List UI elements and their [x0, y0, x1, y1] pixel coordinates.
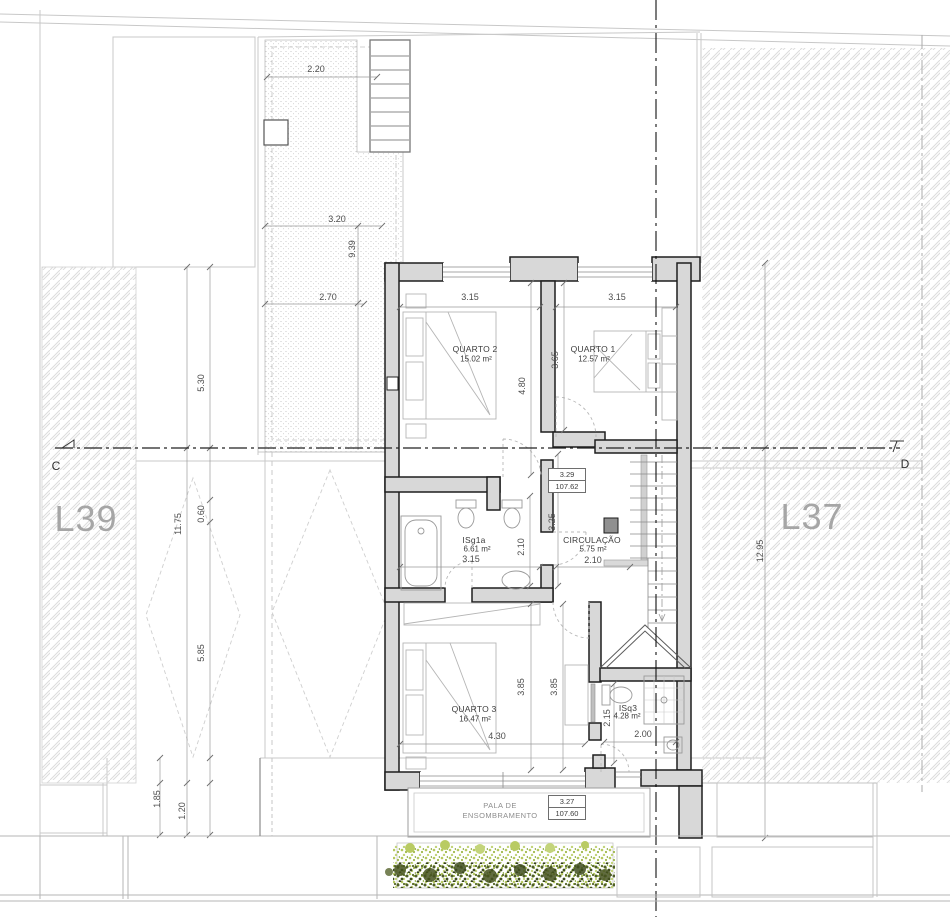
lot-hatch-right — [702, 48, 950, 783]
room-label-circulacao: CIRCULAÇÃO — [563, 535, 621, 545]
floor-plan-sheet: L39 L37 C D QUARTO 2 15.02 m² QUARTO 1 1… — [0, 0, 950, 917]
dim-left-185: 1.85 — [152, 790, 162, 808]
room-label-quarto3: QUARTO 3 — [452, 704, 497, 714]
toilet-2 — [602, 685, 610, 705]
section-marker-d: D — [901, 457, 910, 471]
canopy-label-line2: ENSOMBRAMENTO — [462, 811, 537, 821]
dim-left-1175: 11.75 — [173, 513, 183, 535]
room-area-quarto1: 12.57 m² — [578, 355, 610, 364]
dim-patio-top: 2.20 — [307, 64, 325, 74]
dim-isg1a-width: 3.15 — [462, 554, 480, 564]
house-walls — [385, 257, 702, 838]
level-marker-lower: 3.27 107.60 — [548, 795, 586, 820]
lot-label-l39: L39 — [54, 498, 117, 540]
dim-quarto1-depth: 3.65 — [550, 351, 560, 369]
dim-quarto1-width: 3.15 — [608, 292, 626, 302]
level-elevation: 107.62 — [549, 481, 585, 492]
dim-quarto3-depth-b: 3.85 — [549, 678, 559, 696]
dim-bath-depth: 2.10 — [516, 538, 526, 556]
dim-patio-length: 9.39 — [347, 240, 357, 258]
dim-isq3-depth: 2.15 — [602, 709, 612, 727]
level-elevation: 107.60 — [549, 808, 585, 819]
bathtub — [401, 516, 441, 590]
dim-quarto2-width: 3.15 — [461, 292, 479, 302]
dim-circulacao-width: 2.10 — [584, 555, 602, 565]
lot-label-l37: L37 — [780, 496, 843, 538]
dim-left-585: 5.85 — [196, 644, 206, 662]
washbasin — [502, 571, 530, 589]
room-label-quarto1: QUARTO 1 — [571, 344, 616, 354]
room-label-quarto2: QUARTO 2 — [453, 344, 498, 354]
room-area-quarto3: 16.47 m² — [459, 715, 491, 724]
floor-plan-linework — [0, 0, 950, 917]
room-area-isq3: 4.28 m² — [613, 712, 640, 721]
canopy-label-line1: PALA DE — [462, 801, 537, 811]
dim-left-530: 5.30 — [196, 374, 206, 392]
room-area-quarto2: 15.02 m² — [460, 355, 492, 364]
level-value: 3.27 — [549, 796, 585, 808]
dim-quarto3-depth-a: 3.85 — [516, 678, 526, 696]
dim-quarto2-depth: 4.80 — [517, 377, 527, 395]
structural-column — [604, 518, 618, 533]
dim-left-060: 0.60 — [196, 505, 206, 523]
room-label-isg1a: ISg1a — [462, 535, 485, 545]
dim-circ-depth: 3.25 — [547, 513, 557, 531]
dim-patio-low: 2.70 — [319, 292, 337, 302]
toilet — [456, 500, 476, 508]
room-area-isg1a: 6.61 m² — [463, 545, 490, 554]
level-marker-upper: 3.29 107.62 — [548, 468, 586, 493]
dim-isq3-width: 2.00 — [634, 729, 652, 739]
level-value: 3.29 — [549, 469, 585, 481]
room-area-circulacao: 5.75 m² — [579, 545, 606, 554]
dim-right-1295: 12.95 — [755, 540, 765, 563]
furniture — [403, 294, 677, 769]
bidet — [502, 500, 522, 508]
exterior-stair — [370, 40, 410, 152]
hedge-vegetation — [385, 840, 615, 888]
dim-patio-mid: 3.20 — [328, 214, 346, 224]
dim-quarto3-width: 4.30 — [488, 731, 506, 741]
dim-left-120: 1.20 — [177, 802, 187, 820]
section-marker-c: C — [52, 459, 61, 473]
canopy-label: PALA DE ENSOMBRAMENTO — [462, 801, 537, 821]
